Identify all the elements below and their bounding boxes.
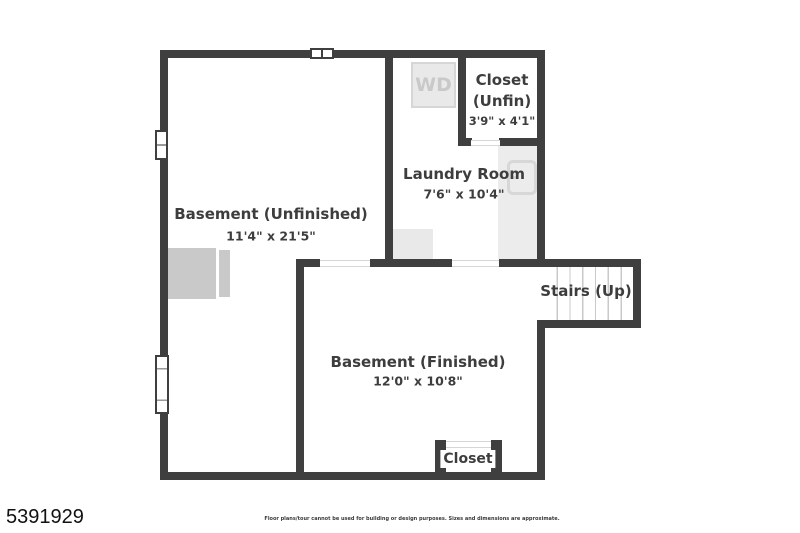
wall-stairs-right [633, 259, 641, 328]
room-dims-basement-finished: 12'0" x 10'8" [373, 374, 463, 389]
room-dims-closet-unfin: 3'9" x 4'1" [469, 114, 535, 128]
finished-doorway-right [452, 260, 499, 267]
room-label-closet-unfin-line1: Closet [476, 71, 529, 89]
wall-right-upper [537, 50, 545, 267]
window-icon-left-upper [155, 130, 168, 160]
closet-unfin-door [471, 140, 500, 146]
window-icon-top [310, 48, 334, 59]
furniture-block-large [166, 248, 216, 299]
furniture-block-small [219, 250, 230, 297]
wall-right-lower [537, 320, 545, 480]
closet-small-door [446, 441, 491, 448]
wall-left [160, 50, 168, 480]
wall-top [160, 50, 545, 58]
washer-dryer-label: WD [415, 74, 452, 96]
room-label-closet-small: Closet [440, 450, 495, 468]
washer-dryer-icon: WD [411, 62, 456, 108]
wall-stairs-top [537, 259, 641, 267]
laundry-corner-pad [393, 229, 433, 259]
room-label-basement-finished: Basement (Finished) [331, 353, 506, 371]
room-label-stairs: Stairs (Up) [540, 282, 631, 300]
window-icon-left-lower [155, 355, 169, 414]
wall-bottom [160, 472, 545, 480]
wall-finished-top-b [370, 259, 452, 267]
room-label-laundry: Laundry Room [403, 165, 525, 183]
room-dims-laundry: 7'6" x 10'4" [424, 187, 505, 202]
wall-closet-unfin-bottom-a [458, 138, 472, 146]
wall-closet-unfin-bottom-b [499, 138, 545, 146]
wall-closet-unfin-left [458, 50, 466, 146]
disclaimer-text: Floor plans/tour cannot be used for buil… [264, 516, 559, 522]
room-dims-basement-unfinished: 11'4" x 21'5" [226, 229, 316, 244]
room-label-closet-unfin-line2: (Unfin) [473, 92, 531, 110]
listing-number: 5391929 [6, 506, 84, 529]
wall-finished-left [296, 259, 304, 480]
room-label-basement-unfinished: Basement (Unfinished) [174, 205, 368, 223]
floor-plan-page: WD Basement (Unfinished) 11'4" x 21'5" L… [0, 0, 800, 533]
wall-stairs-bottom [537, 320, 641, 328]
wall-laundry-divider [385, 50, 393, 267]
finished-doorway-left [320, 260, 370, 267]
